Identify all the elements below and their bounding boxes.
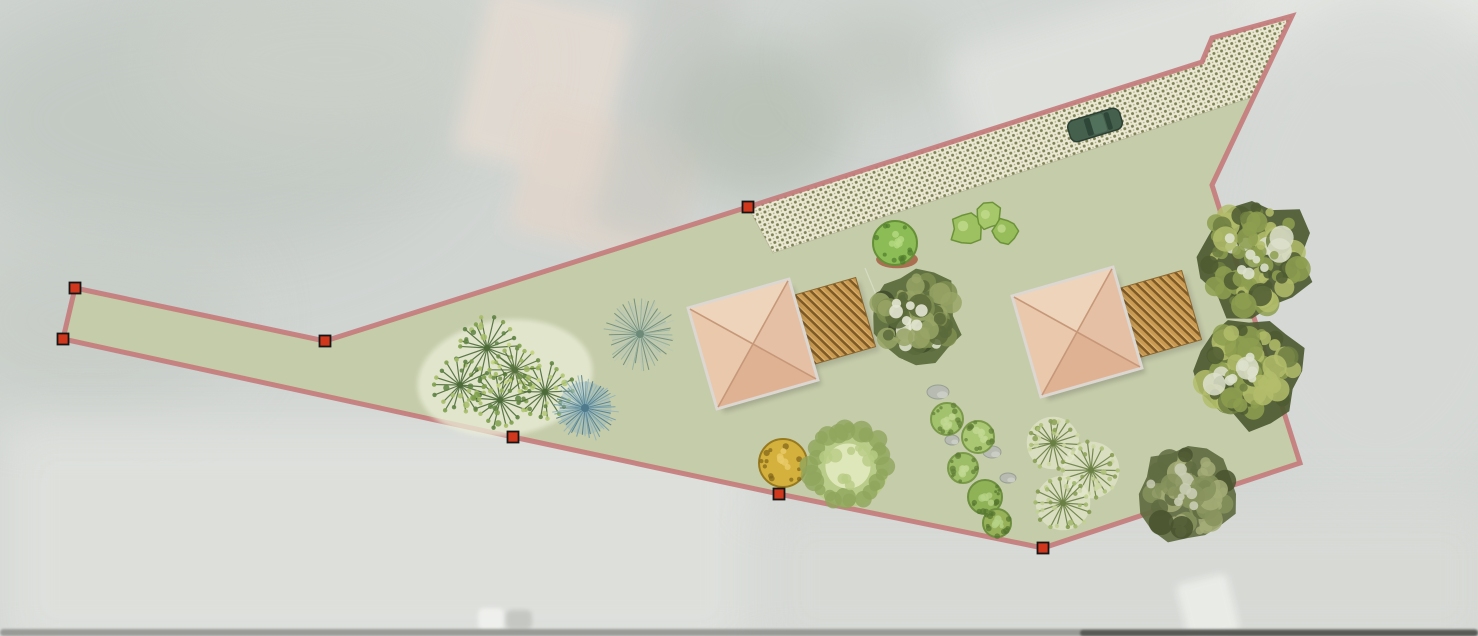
boundary-vertex-handle[interactable] <box>70 283 81 294</box>
rock[interactable] <box>945 435 959 445</box>
tree-round[interactable] <box>873 221 918 268</box>
tree-round[interactable] <box>948 452 979 483</box>
site-plan-svg <box>0 0 1478 636</box>
boundary-vertex-handle[interactable] <box>774 489 785 500</box>
boundary-vertex-handle[interactable] <box>508 432 519 443</box>
boundary-vertex-handle[interactable] <box>58 334 69 345</box>
boundary-vertex-handle[interactable] <box>320 336 331 347</box>
boundary-vertex-handle[interactable] <box>743 202 754 213</box>
tree-round[interactable] <box>931 403 963 435</box>
design-canvas <box>0 0 1478 636</box>
tree-blob[interactable] <box>951 213 981 243</box>
boundary-vertex-handle[interactable] <box>1038 543 1049 554</box>
rock[interactable] <box>1000 473 1016 483</box>
rock[interactable] <box>927 385 949 399</box>
tree-bigtex[interactable] <box>1139 446 1236 542</box>
tree-round[interactable] <box>962 420 995 453</box>
